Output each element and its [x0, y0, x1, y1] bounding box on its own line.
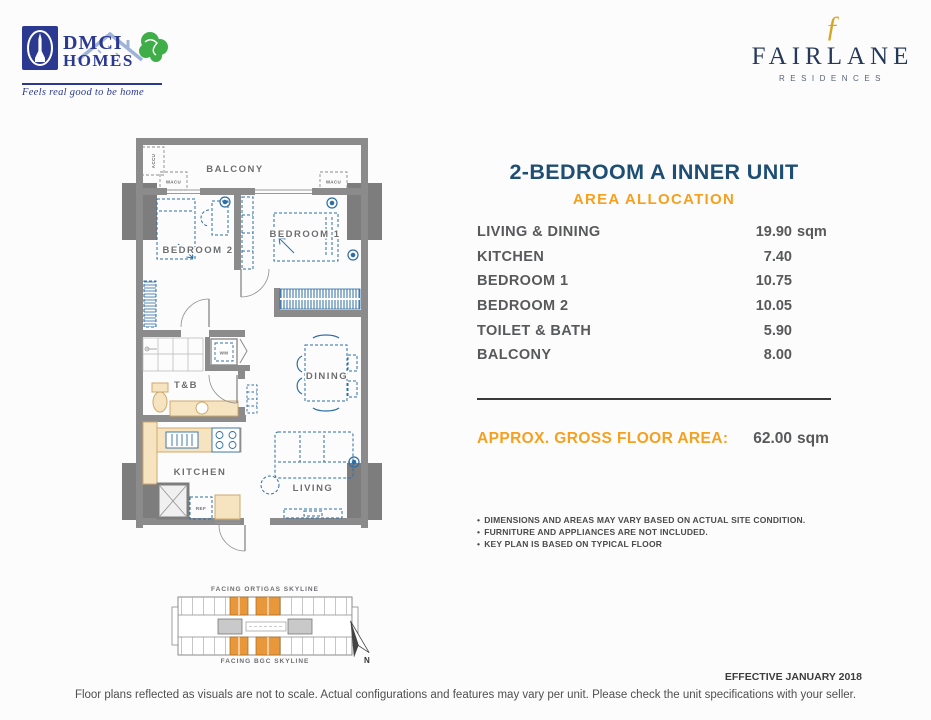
bullet: • — [477, 515, 480, 525]
wacu-left-label: WACU — [166, 180, 181, 185]
table-row: BALCONY 8.00 — [477, 347, 831, 372]
effective-date: EFFECTIVE JANUARY 2018 — [640, 671, 862, 683]
note-item: •FURNITURE AND APPLIANCES ARE NOT INCLUD… — [477, 526, 845, 538]
note-item: •KEY PLAN IS BASED ON TYPICAL FLOOR — [477, 538, 845, 550]
kitchen-sink — [166, 432, 198, 448]
gross-unit: sqm — [792, 430, 831, 448]
bifold-door — [240, 339, 247, 363]
north-arrow-icon: N — [342, 616, 372, 668]
page: DMCI HOMES Feels real good to be home ƒ … — [0, 0, 931, 720]
row-value: 10.05 — [736, 298, 792, 314]
dmci-homes: HOMES — [63, 53, 134, 69]
dmci-homes-logo: DMCI HOMES Feels real good to be home — [22, 26, 174, 98]
dmci-rule — [22, 83, 162, 85]
bullet: • — [477, 527, 480, 537]
row-value: 5.90 — [736, 323, 792, 339]
dmci-wordmark: DMCI HOMES — [63, 34, 134, 69]
row-value: 8.00 — [736, 347, 792, 363]
floor-plan: ACCU WACU WACU — [112, 125, 392, 565]
wm-label: WM — [220, 351, 229, 356]
structural-columns — [122, 183, 382, 520]
gross-label: APPROX. GROSS FLOOR AREA: — [477, 430, 736, 448]
note-text: DIMENSIONS AND AREAS MAY VARY BASED ON A… — [484, 515, 805, 525]
wacu-right-label: WACU — [326, 180, 341, 185]
dmci-logo-row: DMCI HOMES — [22, 26, 174, 80]
gross-value: 62.00 — [736, 430, 792, 448]
ref-label: REF — [196, 506, 206, 511]
divider-line — [477, 398, 831, 400]
fairlane-residences: RESIDENCES — [740, 74, 925, 83]
note-text: KEY PLAN IS BASED ON TYPICAL FLOOR — [484, 539, 662, 549]
tb-label: T&B — [174, 380, 198, 391]
table-row: BEDROOM 1 10.75 — [477, 273, 831, 298]
kitchen-label: KITCHEN — [174, 467, 227, 478]
row-label: KITCHEN — [477, 249, 736, 265]
unit-title: 2-BEDROOM A INNER UNIT — [463, 160, 845, 185]
living-label: LIVING — [293, 483, 334, 494]
stove — [212, 428, 240, 452]
row-label: BEDROOM 1 — [477, 273, 736, 289]
shower-area — [143, 338, 203, 371]
utility-shaft — [158, 484, 188, 518]
row-label: TOILET & BATH — [477, 323, 736, 339]
fairlane-logo: ƒ FAIRLANE RESIDENCES — [740, 12, 925, 83]
row-label: BALCONY — [477, 347, 736, 363]
dmci-tagline: Feels real good to be home — [22, 87, 174, 98]
keyplan-drawing — [170, 595, 360, 657]
bullet: • — [477, 539, 480, 549]
dmci-tower-emblem-icon — [22, 26, 58, 70]
gross-floor-area-row: APPROX. GROSS FLOOR AREA: 62.00 sqm — [463, 430, 845, 448]
balcony-label: BALCONY — [206, 164, 263, 175]
row-unit: sqm — [792, 224, 831, 240]
row-value: 7.40 — [736, 249, 792, 265]
living-furniture — [261, 432, 353, 518]
bedroom1-label: BEDROOM 1 — [269, 229, 340, 240]
disclaimer-text: Floor plans reflected as visuals are not… — [0, 689, 931, 701]
area-allocation-heading: AREA ALLOCATION — [463, 191, 845, 208]
north-label: N — [364, 656, 370, 665]
bedroom2-furniture — [144, 199, 228, 327]
table-row: LIVING & DINING 19.90 sqm — [477, 224, 831, 249]
keyplan-top-label: FACING ORTIGAS SKYLINE — [150, 586, 380, 593]
fairlane-name: FAIRLANE — [740, 43, 925, 71]
table-row: TOILET & BATH 5.90 — [477, 323, 831, 348]
bedroom2-shelf — [144, 281, 156, 327]
dining-label: DINING — [306, 371, 348, 382]
note-item: •DIMENSIONS AND AREAS MAY VARY BASED ON … — [477, 514, 845, 526]
area-table: LIVING & DINING 19.90 sqm KITCHEN 7.40 B… — [463, 224, 845, 372]
note-text: FURNITURE AND APPLIANCES ARE NOT INCLUDE… — [484, 527, 708, 537]
table-row: BEDROOM 2 10.05 — [477, 298, 831, 323]
bedroom2-label: BEDROOM 2 — [162, 245, 233, 256]
bedroom1-fold-arrow — [279, 238, 294, 253]
linen-cabinet — [247, 385, 257, 413]
row-label: BEDROOM 2 — [477, 298, 736, 314]
notes-list: •DIMENSIONS AND AREAS MAY VARY BASED ON … — [463, 514, 845, 550]
unit-info-panel: 2-BEDROOM A INNER UNIT AREA ALLOCATION L… — [463, 160, 845, 550]
row-value: 10.75 — [736, 273, 792, 289]
row-value: 19.90 — [736, 224, 792, 240]
table-row: KITCHEN 7.40 — [477, 249, 831, 274]
row-label: LIVING & DINING — [477, 224, 736, 240]
accu-label: ACCU — [151, 154, 156, 169]
fairlane-monogram-icon: ƒ — [740, 12, 925, 42]
